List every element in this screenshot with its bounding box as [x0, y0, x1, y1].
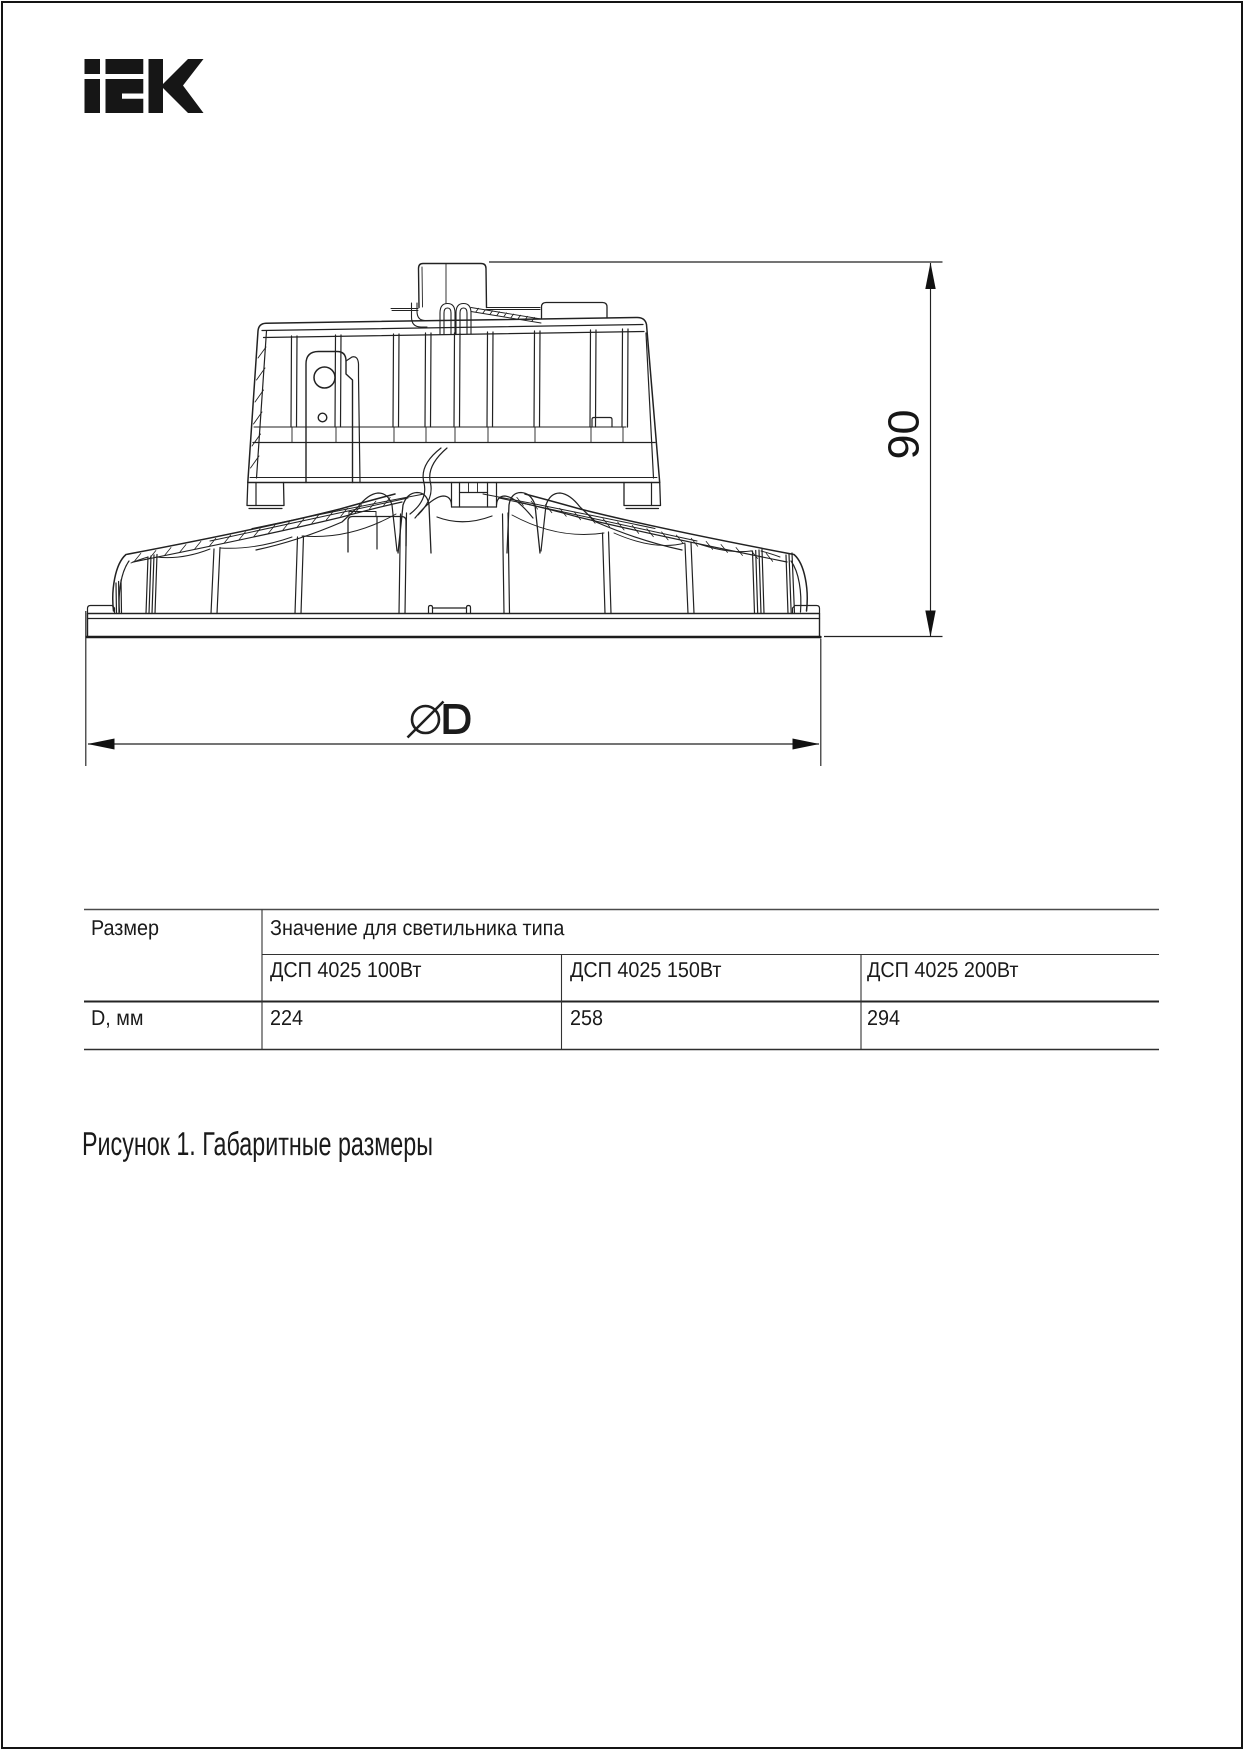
svg-text:90: 90 — [881, 410, 929, 460]
